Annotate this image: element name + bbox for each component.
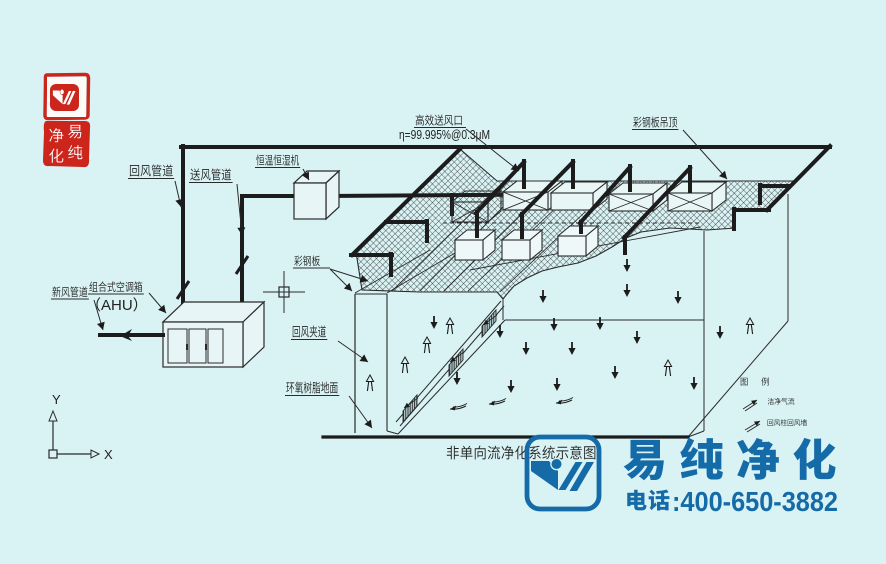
svg-text::400-650-3882: :400-650-3882 — [672, 486, 838, 517]
svg-text:Y: Y — [52, 392, 61, 407]
svg-text:X: X — [104, 447, 113, 462]
svg-text:η=99.995%@0.3μM: η=99.995%@0.3μM — [399, 127, 490, 142]
svg-text:（AHU）: （AHU） — [86, 297, 148, 314]
